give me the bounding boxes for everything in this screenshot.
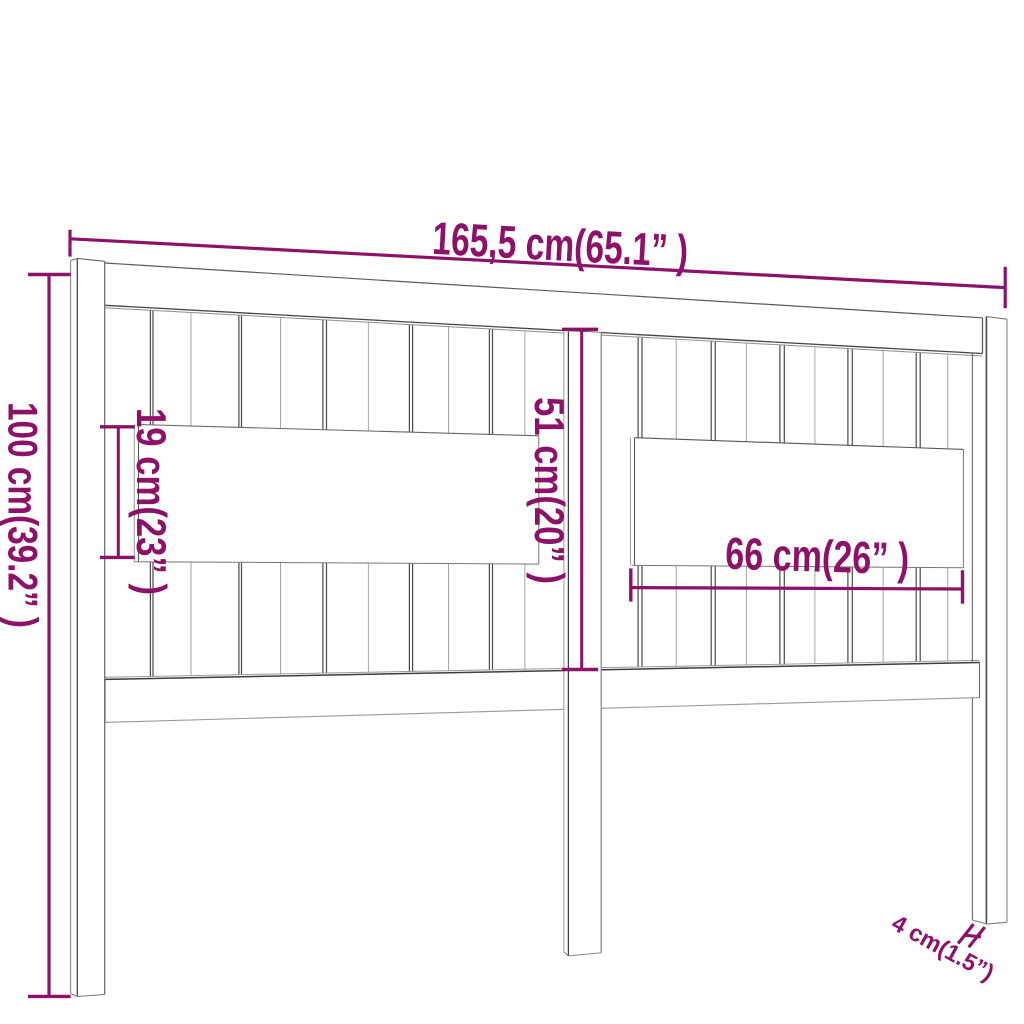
svg-text:66 cm(26” ): 66 cm(26” )	[725, 528, 911, 585]
svg-text:19 cm(23” ): 19 cm(23” )	[128, 408, 175, 595]
svg-text:51 cm(20” ): 51 cm(20” )	[526, 397, 573, 584]
svg-text:100 cm(39.2” ): 100 cm(39.2” )	[0, 402, 47, 628]
